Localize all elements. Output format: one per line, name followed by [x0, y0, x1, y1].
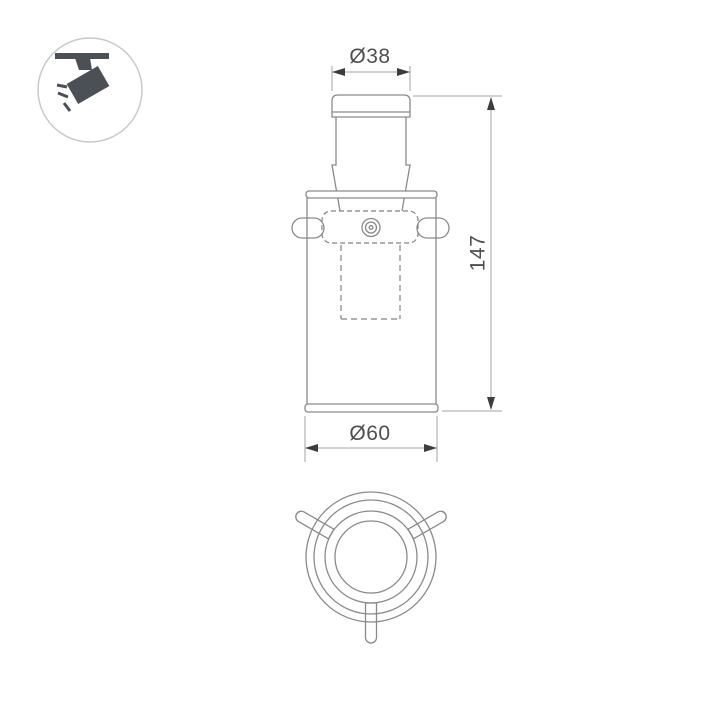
- inner-rim-circle: [325, 511, 417, 603]
- side-pin-left: [292, 218, 324, 238]
- side-pin-right: [417, 218, 449, 238]
- arrow-down: [487, 397, 495, 410]
- dimension-label-top-diameter: Ø38: [349, 45, 390, 68]
- adjustment-knob: [362, 219, 380, 237]
- dimension-label-overall-height: 147: [467, 235, 490, 272]
- arrow-up: [487, 97, 495, 110]
- dimension-label-base-diameter: Ø60: [349, 422, 390, 445]
- dimension-overall-height: 147: [413, 96, 502, 411]
- tab-pin-upper-right: [408, 509, 448, 539]
- bottom-view: [294, 492, 448, 643]
- lens-circle: [335, 521, 407, 593]
- rim-circle: [314, 500, 428, 614]
- yoke-bracket-hidden: [322, 211, 418, 243]
- front-view: [292, 95, 449, 412]
- track-spotlight-icon: [38, 38, 142, 142]
- arrow-right: [397, 68, 410, 76]
- hidden-internal-module: [341, 245, 400, 319]
- base-ring: [305, 404, 438, 412]
- light-ray-icon: [57, 85, 67, 87]
- arrow-left: [332, 68, 345, 76]
- top-cap: [332, 95, 410, 117]
- mounting-flange: [306, 191, 437, 198]
- dimension-base-diameter: Ø60: [305, 416, 437, 462]
- tab-pin-upper-left: [294, 509, 334, 539]
- arrow-left: [305, 444, 318, 452]
- tab-pin-bottom: [366, 603, 377, 643]
- arrow-right: [424, 444, 437, 452]
- drawing-sheet: Ø38 147 Ø60: [0, 0, 720, 720]
- technical-drawing-canvas: Ø38 147 Ø60: [0, 0, 720, 720]
- dimension-top-diameter: Ø38: [332, 45, 410, 91]
